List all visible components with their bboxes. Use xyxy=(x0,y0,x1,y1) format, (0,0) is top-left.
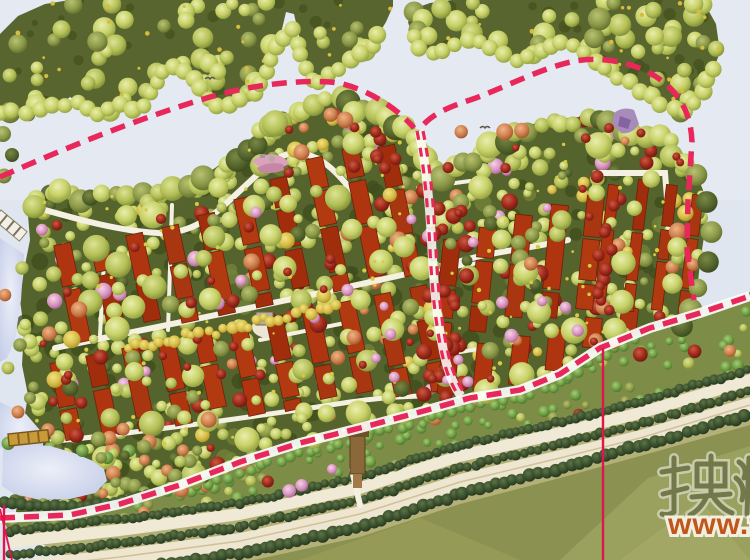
svg-text:www.f: www.f xyxy=(667,508,750,541)
